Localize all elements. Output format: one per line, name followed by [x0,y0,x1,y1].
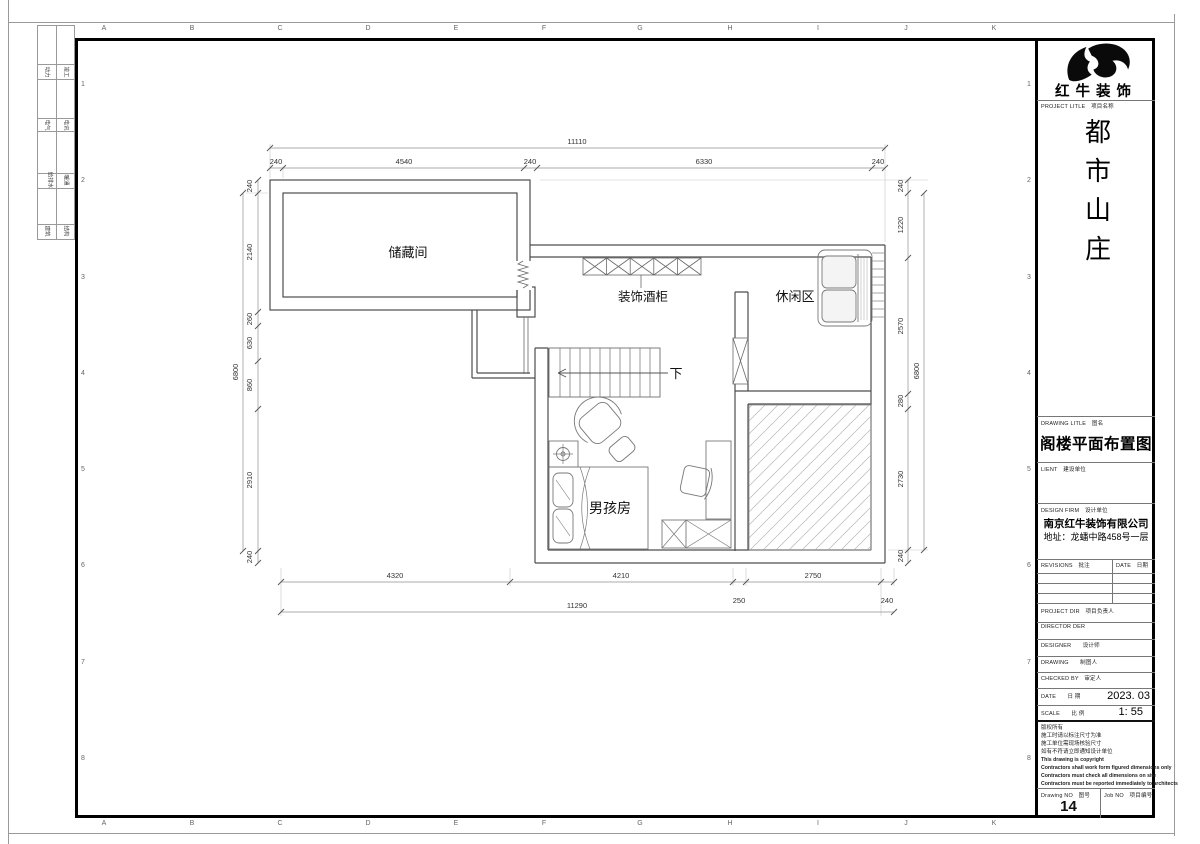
svg-text:4320: 4320 [387,571,404,580]
design-firm-address: 地址：龙蟠中路458号一层 [1037,530,1155,543]
room-label-wine-cabinet: 装饰酒柜 [618,290,668,304]
svg-text:2570: 2570 [896,318,905,335]
svg-text:11110: 11110 [567,137,586,146]
svg-text:240: 240 [896,180,905,193]
designer-label: DESIGNER 设计师 [1041,641,1100,649]
revisions-divider [1112,559,1113,603]
svg-text:240: 240 [881,596,894,605]
dimension-text-left: 240 2140 260 630 860 2910 240 6800 [231,180,254,564]
note-line: This drawing is copyright [1041,756,1153,764]
floor-plan: 11110 240 4540 240 6330 240 240 2140 260… [0,0,1200,844]
stairs-down-label: 下 [669,366,682,381]
armchair [565,387,637,463]
svg-text:860: 860 [245,379,254,392]
dimension-text-right: 240 1220 2570 280 2730 240 6800 [896,180,921,563]
svg-text:1220: 1220 [896,217,905,234]
bottom-divider [1100,788,1101,818]
svg-text:4210: 4210 [613,571,630,580]
sofa [818,250,872,326]
drawing-number: 14 [1037,798,1100,815]
svg-text:240: 240 [524,157,537,166]
note-line: 施工单位需现场核验尺寸 [1041,740,1153,748]
note-line: 如有不符请立即通知设计单位 [1041,748,1153,756]
drawing-title: 阁楼平面布置图 [1037,432,1155,454]
note-line: 版权所有 [1041,724,1153,732]
wall-column-x [733,338,748,384]
project-name: 都市山庄 [1078,118,1115,274]
job-no-label: Job NO 项目编号 [1104,791,1152,799]
svg-text:6800: 6800 [231,364,240,381]
director-label: DIRECTOR DER [1041,624,1085,630]
window-symbol [872,253,885,317]
drawing-title-label: DRAWING LITLE 图名 [1041,419,1103,427]
note-line: Contractors must check all dimensions on… [1041,772,1153,780]
svg-text:6800: 6800 [912,363,921,380]
sliding-door-lines [524,317,528,374]
revisions-label: REVISIONS 批注 [1041,561,1090,569]
copyright-notes: 版权所有 施工时请以标注尺寸为准 施工单位需现场核验尺寸 如有不符请立即通知设计… [1041,724,1153,788]
room-label-leisure: 休闲区 [775,289,814,304]
project-dir-label: PROJECT DIR 项目负责人 [1041,607,1114,615]
drawing-by-label: DRAWING 制图人 [1041,658,1097,666]
svg-text:11290: 11290 [567,601,587,610]
date-value: 2023. 03 [1107,690,1150,702]
note-line: Contractors must be reported immediately… [1041,780,1153,788]
svg-text:2910: 2910 [245,472,254,489]
note-line: Contractors shall work form figured dime… [1041,764,1153,772]
void-hatch-area [749,405,871,550]
staircase [549,348,668,397]
room-label-storage: 储藏间 [388,245,427,260]
nightstand-lamp [549,441,578,467]
svg-text:250: 250 [733,596,746,605]
scale-value: 1: 55 [1119,706,1143,718]
svg-text:240: 240 [245,180,254,193]
svg-text:240: 240 [872,157,885,166]
room-label-boy-room: 男孩房 [589,500,631,516]
client-label: LIENT 建设单位 [1041,465,1086,473]
project-label: PROJECT LITLE 项目名称 [1041,102,1114,110]
svg-text:240: 240 [896,550,905,563]
svg-text:280: 280 [896,395,905,408]
svg-text:6330: 6330 [696,157,713,166]
svg-text:2750: 2750 [805,571,822,580]
revisions-date-label: DATE 日期 [1116,561,1148,569]
drawing-sheet: { "sheet": { "grid_letters": ["A","B","C… [0,0,1200,844]
scale-label: SCALE 比 例 [1041,709,1085,717]
date-label: DATE 日 期 [1041,692,1081,700]
dimension-text-top: 11110 240 4540 240 6330 240 [270,137,885,166]
svg-text:630: 630 [245,337,254,350]
svg-text:240: 240 [270,157,283,166]
svg-text:2140: 2140 [245,244,254,261]
note-line: 施工时请以标注尺寸为准 [1041,732,1153,740]
checked-by-label: CHECKED BY 审定人 [1041,674,1101,682]
brand-name: 红牛装饰 [1037,80,1155,101]
desk-and-chair [679,441,731,519]
svg-text:240: 240 [245,551,254,564]
design-firm-name: 南京红牛装饰有限公司 [1037,516,1155,531]
dimension-text-bottom: 4320 4210 2750 250 240 11290 [387,571,894,610]
svg-text:4540: 4540 [396,157,413,166]
svg-text:260: 260 [245,313,254,326]
design-firm-label: DESIGN FIRM 设计单位 [1041,506,1108,514]
wine-cabinet [583,258,701,288]
wardrobe [662,520,731,548]
svg-text:2730: 2730 [896,471,905,488]
title-block: 红牛装饰 PROJECT LITLE 项目名称 都市山庄 DRAWING LIT… [1037,38,1155,818]
